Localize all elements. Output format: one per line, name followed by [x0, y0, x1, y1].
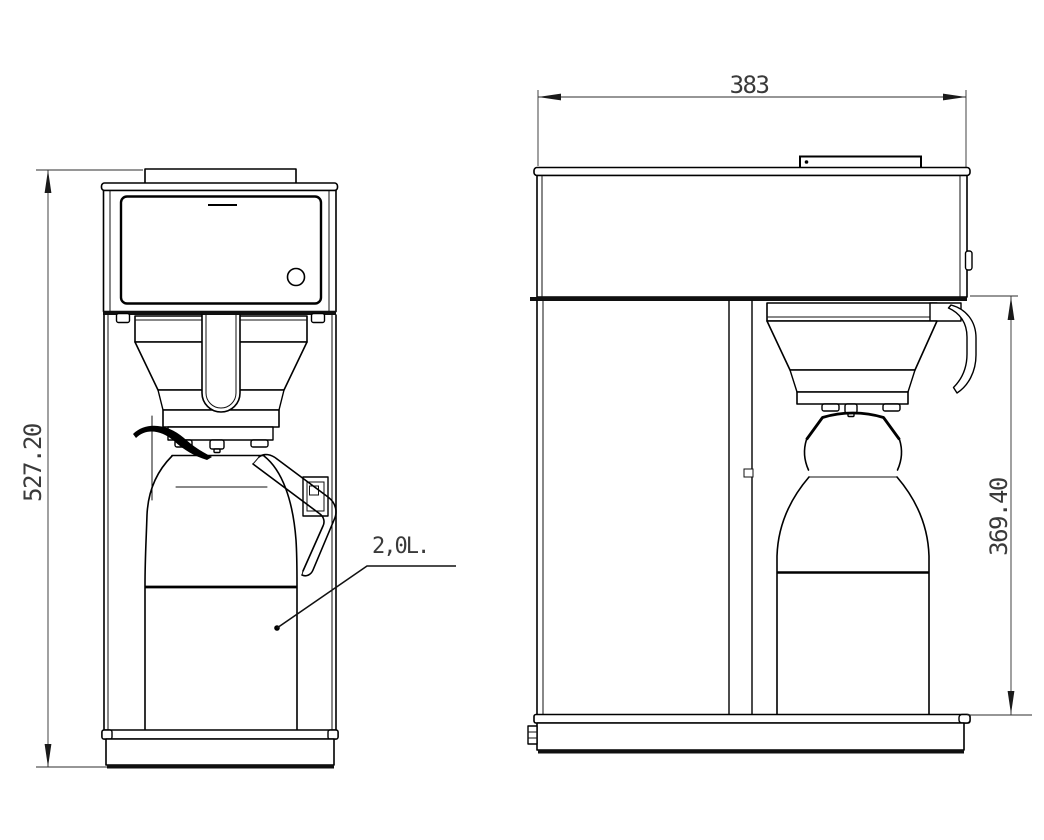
arrowhead-up: [1008, 297, 1015, 320]
front-base: [102, 730, 338, 769]
arrowhead-right: [943, 94, 966, 101]
funnel-nub: [822, 404, 839, 411]
left-foot-tab: [117, 314, 130, 323]
jug-right-side: [264, 456, 297, 729]
head-top-cap-side: [534, 168, 970, 176]
head-bottom-band: [103, 311, 336, 315]
head-top-cap: [102, 183, 338, 191]
arrowhead-up: [45, 170, 52, 193]
arrowhead-down: [45, 744, 52, 767]
arrowhead-left: [538, 94, 561, 101]
funnel-channel: [202, 315, 240, 412]
drawing-page: 527.20: [0, 0, 1044, 840]
height-dimension-text: 527.20: [19, 424, 47, 502]
power-inlet: [528, 726, 537, 744]
technical-drawing: 527.20: [0, 0, 1044, 840]
capacity-label: 2,0L.: [372, 534, 428, 559]
arrowhead-down: [1008, 691, 1015, 714]
side-switch: [966, 251, 973, 270]
clearance-dimension-text: 369.40: [985, 478, 1013, 556]
front-view: 527.20: [19, 169, 456, 769]
side-height-dimension: 369.40: [967, 296, 1032, 715]
funnel-nub: [251, 440, 268, 447]
jug-left-side: [145, 456, 172, 729]
control-panel: [121, 197, 321, 304]
funnel-nub: [210, 440, 224, 449]
right-foot-tab: [312, 314, 325, 323]
lid-handle: [145, 169, 296, 183]
lid-handle-side: [800, 157, 921, 168]
thermos-jug-side: [777, 413, 929, 714]
start-button: [288, 269, 305, 286]
capacity-leader: 2,0L.: [274, 534, 456, 631]
head-unit: [102, 169, 338, 323]
side-base: [528, 715, 970, 754]
funnel-nub: [214, 449, 220, 453]
filter-funnel-side: [767, 303, 976, 417]
funnel-nub: [883, 404, 900, 411]
bracket-edge: [744, 469, 753, 477]
side-view: 383: [528, 71, 1032, 754]
jug-left-shoulder: [777, 477, 809, 714]
head-body-side: [537, 176, 967, 298]
jug-right-shoulder: [897, 477, 929, 714]
side-machine: [528, 157, 976, 754]
thermos-jug-front: [133, 426, 336, 729]
rear-column: [537, 301, 753, 714]
head-bottom-band-side: [530, 297, 967, 301]
front-machine: [102, 169, 339, 769]
depth-dimension-text: 383: [730, 71, 769, 99]
head-unit-side: [530, 157, 972, 302]
